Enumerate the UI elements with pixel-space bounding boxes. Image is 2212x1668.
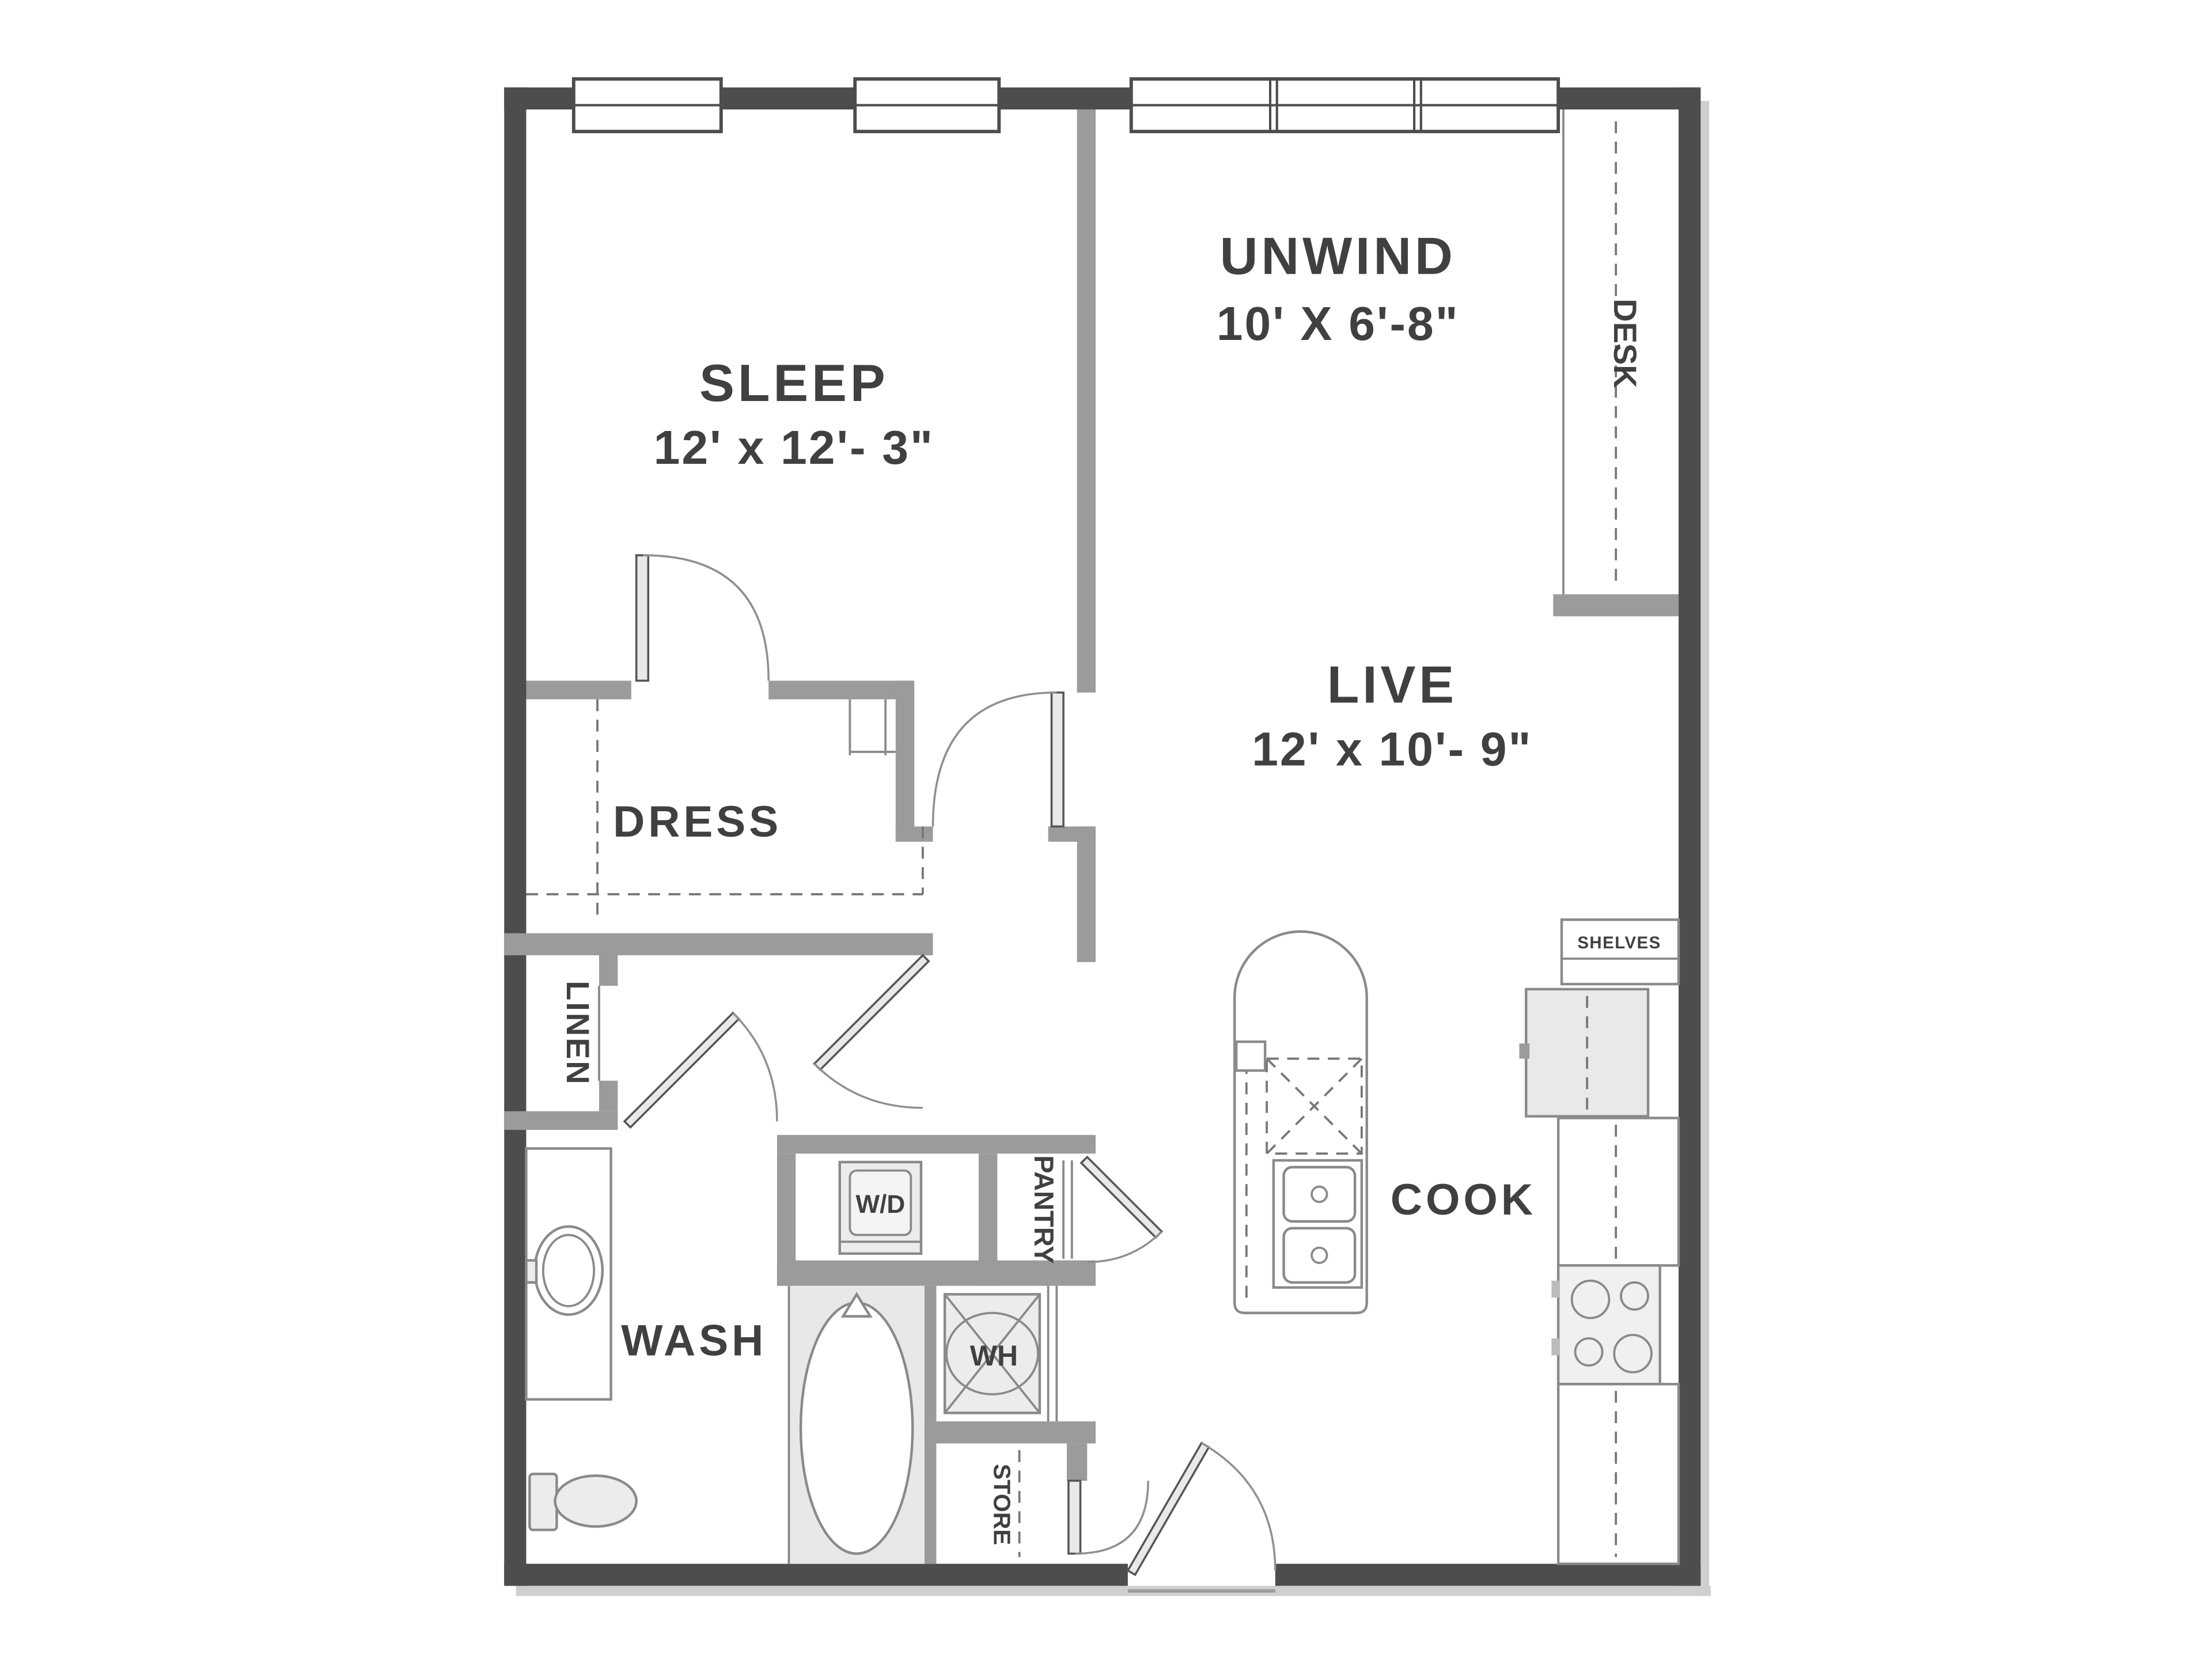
sleep-label: SLEEP <box>699 354 888 413</box>
linen-label: LINEN <box>560 981 596 1085</box>
kitchen-island <box>1235 932 1367 1313</box>
counter-upper <box>1558 1118 1679 1265</box>
room-sleep: SLEEP 12' x 12'- 3" <box>654 354 934 474</box>
window-sleep-2 <box>855 79 999 131</box>
wall-shadow-bottom <box>516 1586 1711 1596</box>
shelves-cabinet: SHELVES <box>1562 920 1679 984</box>
entry-door-arc <box>1202 1443 1275 1571</box>
cook-label: COOK <box>1391 1175 1536 1224</box>
island-notch <box>1237 1042 1266 1071</box>
desk-nook: DESK <box>1563 109 1643 594</box>
window-unwind-triple <box>1131 79 1558 131</box>
window-sleep-1 <box>574 79 721 131</box>
sleep-door-leaf <box>637 555 649 681</box>
store-door <box>1069 1481 1148 1554</box>
wall-wd-pantry-top <box>777 1135 1096 1153</box>
sink-faucet <box>527 1260 537 1282</box>
bathtub <box>789 1286 925 1564</box>
washer-dryer: W/D <box>840 1162 921 1254</box>
wall-left <box>505 88 527 1586</box>
bath-door <box>624 1013 777 1128</box>
wall-desk-sill <box>1554 594 1679 616</box>
sink-outer <box>535 1227 603 1315</box>
pantry-closet: PANTRY <box>1029 1155 1072 1264</box>
water-heater-label: WH <box>970 1340 1018 1372</box>
store-closet: STORE <box>989 1450 1020 1557</box>
wall-wd-bottom <box>777 1260 1096 1285</box>
vestibule-door-arc <box>815 1064 923 1107</box>
pantry-door <box>1081 1157 1162 1262</box>
sleep-door <box>637 555 768 681</box>
water-heater: WH <box>945 1286 1057 1421</box>
wall-bottom-right <box>1275 1564 1700 1586</box>
wall-hall-left <box>896 680 914 841</box>
entry-door-leaf <box>1128 1443 1209 1575</box>
wall-wh-bottom <box>925 1421 1096 1443</box>
living-door-arc <box>933 693 1057 826</box>
sleep-dims: 12' x 12'- 3" <box>654 421 934 474</box>
washer-dryer-label: W/D <box>856 1190 906 1219</box>
toilet <box>530 1474 637 1530</box>
stove-knob-1 <box>1552 1281 1560 1298</box>
entry-door <box>1128 1443 1275 1591</box>
wall-store-jamb <box>1067 1443 1087 1481</box>
bath-door-arc <box>733 1013 777 1121</box>
wall-dress-top-right <box>769 680 913 699</box>
bath-door-leaf <box>624 1013 739 1128</box>
room-unwind: UNWIND 10' X 6'-8" <box>1217 226 1460 350</box>
wall-right <box>1679 88 1700 1586</box>
pantry-door-leaf <box>1081 1157 1162 1238</box>
store-label: STORE <box>989 1463 1016 1545</box>
counter-lower <box>1558 1384 1679 1564</box>
unwind-label: UNWIND <box>1220 226 1456 285</box>
wall-linen-stub-bottom <box>599 1081 618 1111</box>
refrigerator <box>1520 989 1649 1117</box>
pantry-door-arc <box>1088 1231 1162 1262</box>
dress-label: DRESS <box>613 797 782 846</box>
vestibule-door-leaf <box>815 955 929 1070</box>
desk-label: DESK <box>1608 298 1644 388</box>
live-dims: 12' x 10'- 9" <box>1252 723 1532 776</box>
stove <box>1552 1265 1660 1384</box>
wall-dress-bottom <box>505 933 933 955</box>
shelves-label: SHELVES <box>1578 933 1661 952</box>
wall-bottom-left <box>505 1564 1128 1586</box>
sleep-door-arc <box>643 555 769 681</box>
store-door-arc <box>1075 1481 1149 1554</box>
wash-label: WASH <box>622 1316 767 1365</box>
unwind-dims: 10' X 6'-8" <box>1217 297 1460 350</box>
island-sink <box>1274 1160 1362 1288</box>
wall-central-lower <box>1077 826 1096 962</box>
wall-shadow-right <box>1701 101 1710 1596</box>
page-background: DESK <box>0 0 2212 1668</box>
wall-linen-bottom <box>505 1111 618 1129</box>
wall-central-upper <box>1077 109 1096 693</box>
living-door <box>933 693 1064 826</box>
wall-dress-top-left <box>527 680 631 699</box>
wall-linen-stub-top <box>599 955 618 986</box>
floor-plan-svg: DESK <box>453 50 1758 1618</box>
kitchen: SHELVES <box>1235 920 1679 1564</box>
pantry-label: PANTRY <box>1029 1155 1059 1264</box>
vestibule-door <box>815 955 929 1108</box>
store-door-leaf <box>1069 1481 1081 1554</box>
living-door-leaf <box>1052 693 1064 826</box>
wall-central-jamb <box>1048 826 1096 841</box>
room-live: LIVE 12' x 10'- 9" <box>1252 655 1532 776</box>
live-label: LIVE <box>1327 655 1457 714</box>
stove-knob-2 <box>1552 1338 1560 1355</box>
floor-plan: DESK <box>453 50 1758 1618</box>
wall-hall-left-foot <box>896 826 933 841</box>
